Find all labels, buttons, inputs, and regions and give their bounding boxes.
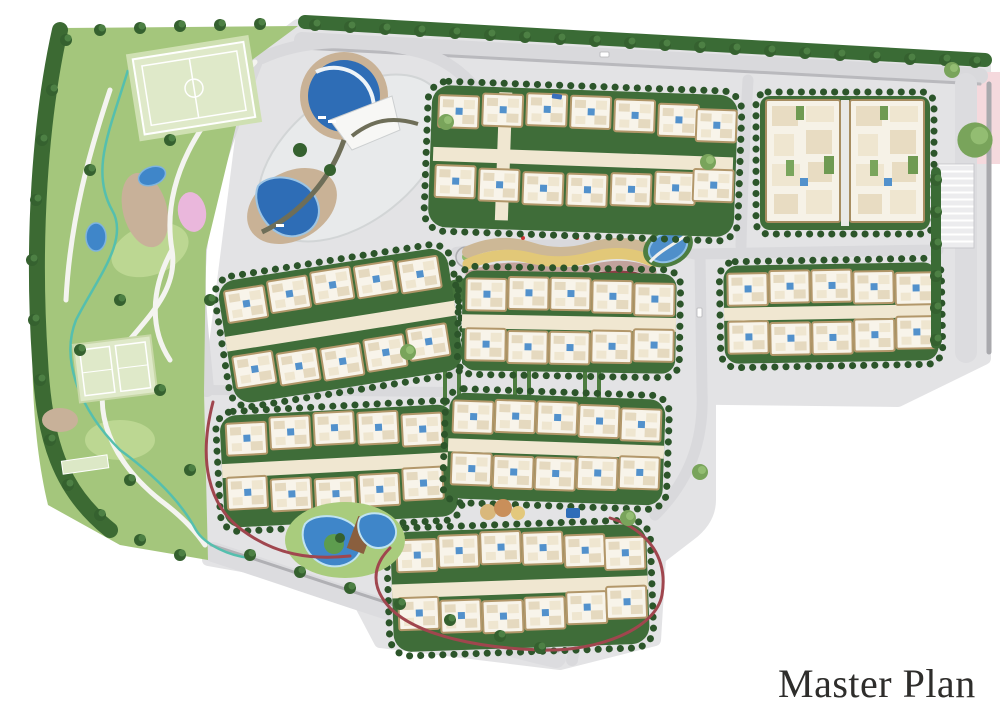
- cluster-bottom-center: [386, 519, 654, 656]
- tennis-courts: [73, 335, 157, 402]
- pool-sign: [566, 508, 580, 518]
- cluster-right-mid: [719, 258, 943, 368]
- cluster-right-top: [756, 92, 934, 234]
- plan-title: Master Plan: [778, 660, 998, 707]
- cluster-top-center: [423, 81, 742, 242]
- master-plan-image: Master Plan: [0, 0, 1000, 718]
- parking-bays: [938, 164, 974, 248]
- cluster-bottom-middle: [442, 388, 670, 510]
- tree-buffer-right: [930, 172, 942, 346]
- lagoon-pool-garden: [285, 502, 405, 578]
- site-plan-canvas: [0, 0, 1000, 718]
- cluster-center: [457, 266, 681, 378]
